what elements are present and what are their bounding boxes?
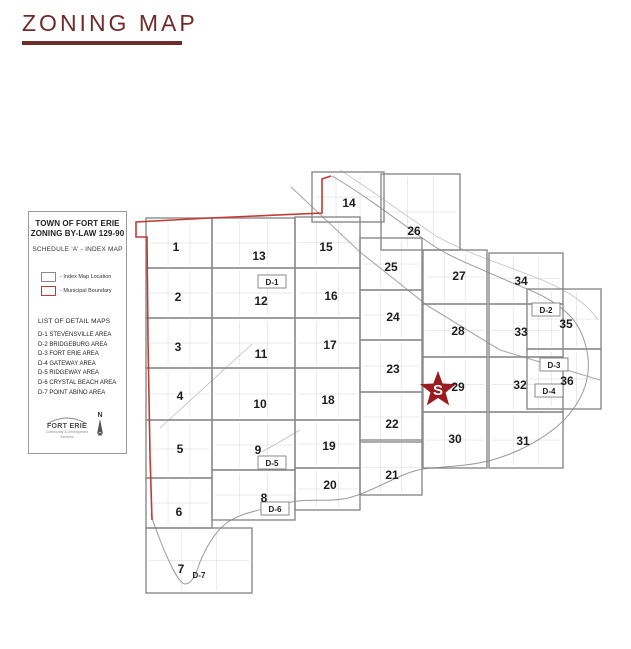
map-tile-number: 19 bbox=[322, 439, 336, 453]
map-tile-number: 14 bbox=[342, 196, 356, 210]
river-line bbox=[340, 170, 598, 320]
area-label: D-3 bbox=[548, 361, 561, 370]
map-tile-number: 30 bbox=[448, 432, 462, 446]
map-tile-number: 17 bbox=[323, 338, 337, 352]
map-tile-number: 32 bbox=[513, 378, 527, 392]
map-tile-number: 36 bbox=[560, 374, 574, 388]
area-labels: D-1D-2D-3D-4D-5D-6D-7 bbox=[193, 275, 568, 580]
map-tile-number: 12 bbox=[254, 294, 268, 308]
map-tile-number: 20 bbox=[323, 478, 337, 492]
area-label: D-1 bbox=[266, 278, 279, 287]
map-tiles bbox=[146, 172, 601, 593]
map-tile-number: 4 bbox=[177, 389, 184, 403]
map-tile-number: 34 bbox=[514, 274, 528, 288]
area-label: D-4 bbox=[543, 387, 556, 396]
index-map: S D-1D-2D-3D-4D-5D-6D-7 1234567891011121… bbox=[0, 0, 631, 649]
map-tile-number: 31 bbox=[516, 434, 530, 448]
map-tile-number: 11 bbox=[255, 347, 268, 361]
map-tile-number: 35 bbox=[559, 317, 573, 331]
map-tile-number: 16 bbox=[324, 289, 338, 303]
map-tile-number: 21 bbox=[385, 468, 399, 482]
map-tile-number: 3 bbox=[175, 340, 182, 354]
map-tile-number: 27 bbox=[452, 269, 466, 283]
area-label: D-2 bbox=[540, 306, 553, 315]
map-tile-number: 26 bbox=[407, 224, 421, 238]
map-tile-number: 1 bbox=[173, 240, 180, 254]
map-tile-number: 23 bbox=[386, 362, 400, 376]
map-tile-number: 25 bbox=[384, 260, 398, 274]
star-letter: S bbox=[433, 382, 443, 399]
map-tile-number: 6 bbox=[176, 505, 183, 519]
map-tile-number: 24 bbox=[386, 310, 400, 324]
area-label: D-5 bbox=[266, 459, 279, 468]
map-tile-number: 29 bbox=[451, 380, 465, 394]
map-tile-number: 13 bbox=[252, 249, 266, 263]
map-tile-number: 33 bbox=[514, 325, 528, 339]
map-tile-number: 15 bbox=[319, 240, 333, 254]
map-tile-number: 10 bbox=[253, 397, 267, 411]
highway-line bbox=[291, 187, 600, 380]
area-label: D-6 bbox=[269, 505, 282, 514]
map-tile-number: 7 bbox=[178, 562, 185, 576]
area-label: D-7 bbox=[193, 571, 206, 580]
map-tile-number: 9 bbox=[255, 443, 262, 457]
map-tile-number: 28 bbox=[451, 324, 465, 338]
map-tile-number: 22 bbox=[385, 417, 399, 431]
map-tile-number: 18 bbox=[321, 393, 335, 407]
map-tile-number: 5 bbox=[177, 442, 184, 456]
map-tile-number: 2 bbox=[175, 290, 182, 304]
map-tile-number: 8 bbox=[261, 491, 268, 505]
zoning-map-page: ZONING MAP TOWN OF FORT ERIE ZONING BY-L… bbox=[0, 0, 631, 649]
